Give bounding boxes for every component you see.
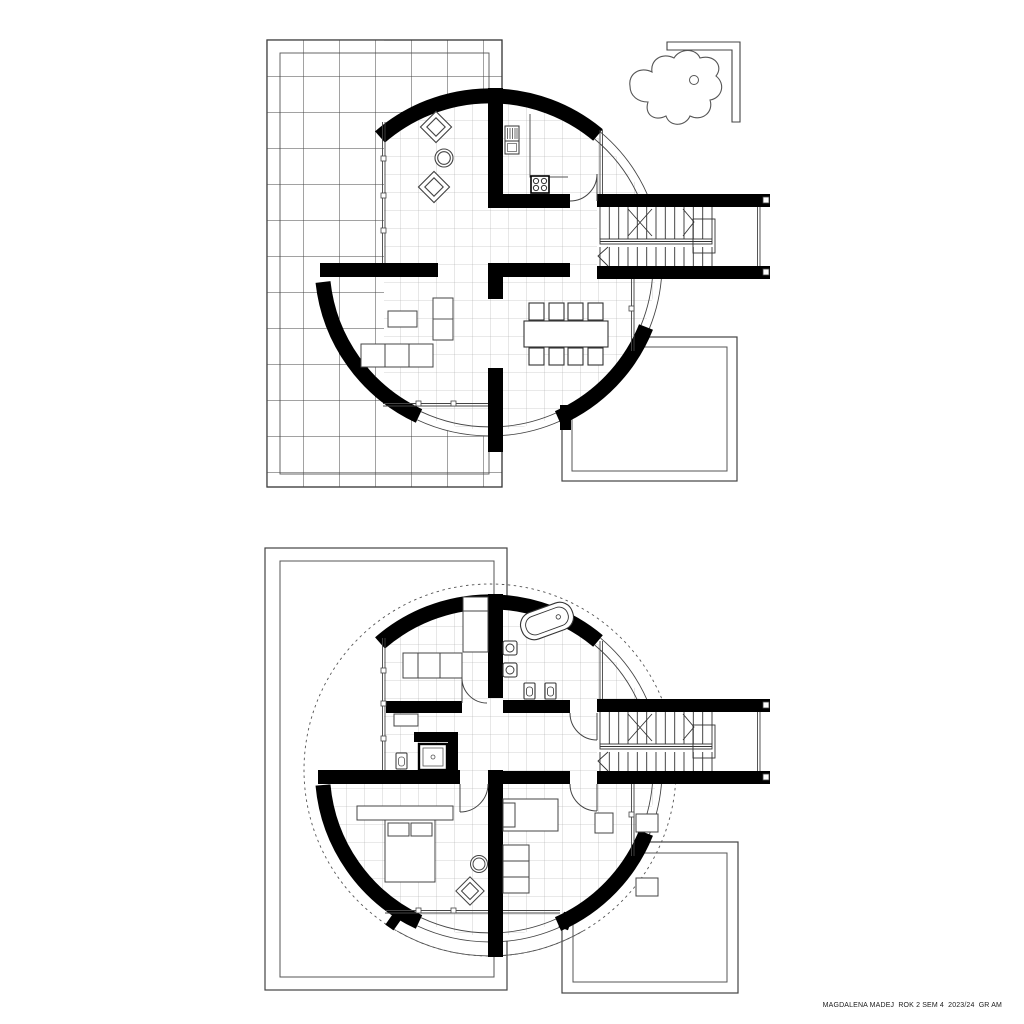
round-table [471, 856, 488, 873]
dining-chair [568, 348, 583, 365]
title-block-caption: MAGDALENA MADEJ ROK 2 SEM 4 2023/24 GR A… [823, 1002, 1002, 1009]
pillow [388, 823, 409, 836]
dining-table [524, 321, 608, 347]
stove [531, 176, 549, 193]
tv-cabinet [388, 311, 417, 327]
wall-unit [636, 814, 658, 832]
dining-chair [529, 348, 544, 365]
dresser [394, 714, 418, 726]
dining-chair [568, 303, 583, 320]
dining-chair [529, 303, 544, 320]
ground-floor-plan [267, 40, 770, 487]
sofa [361, 344, 433, 367]
sink [503, 663, 517, 677]
pillow [503, 803, 515, 827]
dresser [503, 845, 529, 893]
pillow [411, 823, 432, 836]
pond [630, 51, 722, 125]
dining-chair [549, 348, 564, 365]
toilet [396, 753, 407, 769]
bed [463, 597, 488, 652]
upper-floor-plan [265, 548, 770, 993]
wall-unit [636, 878, 658, 896]
floor-plans-drawing [0, 0, 1024, 1024]
sink [503, 641, 517, 655]
bidet [545, 683, 556, 699]
drawing-sheet: MAGDALENA MADEJ ROK 2 SEM 4 2023/24 GR A… [0, 0, 1024, 1024]
dining-chair [588, 348, 603, 365]
round-table [435, 149, 453, 167]
headboard [357, 806, 453, 820]
corridor-floor [597, 711, 770, 773]
toilet [524, 683, 535, 699]
low-cabinet [403, 653, 462, 678]
nightstand [595, 813, 613, 833]
dining-chair [549, 303, 564, 320]
dining-chair [588, 303, 603, 320]
